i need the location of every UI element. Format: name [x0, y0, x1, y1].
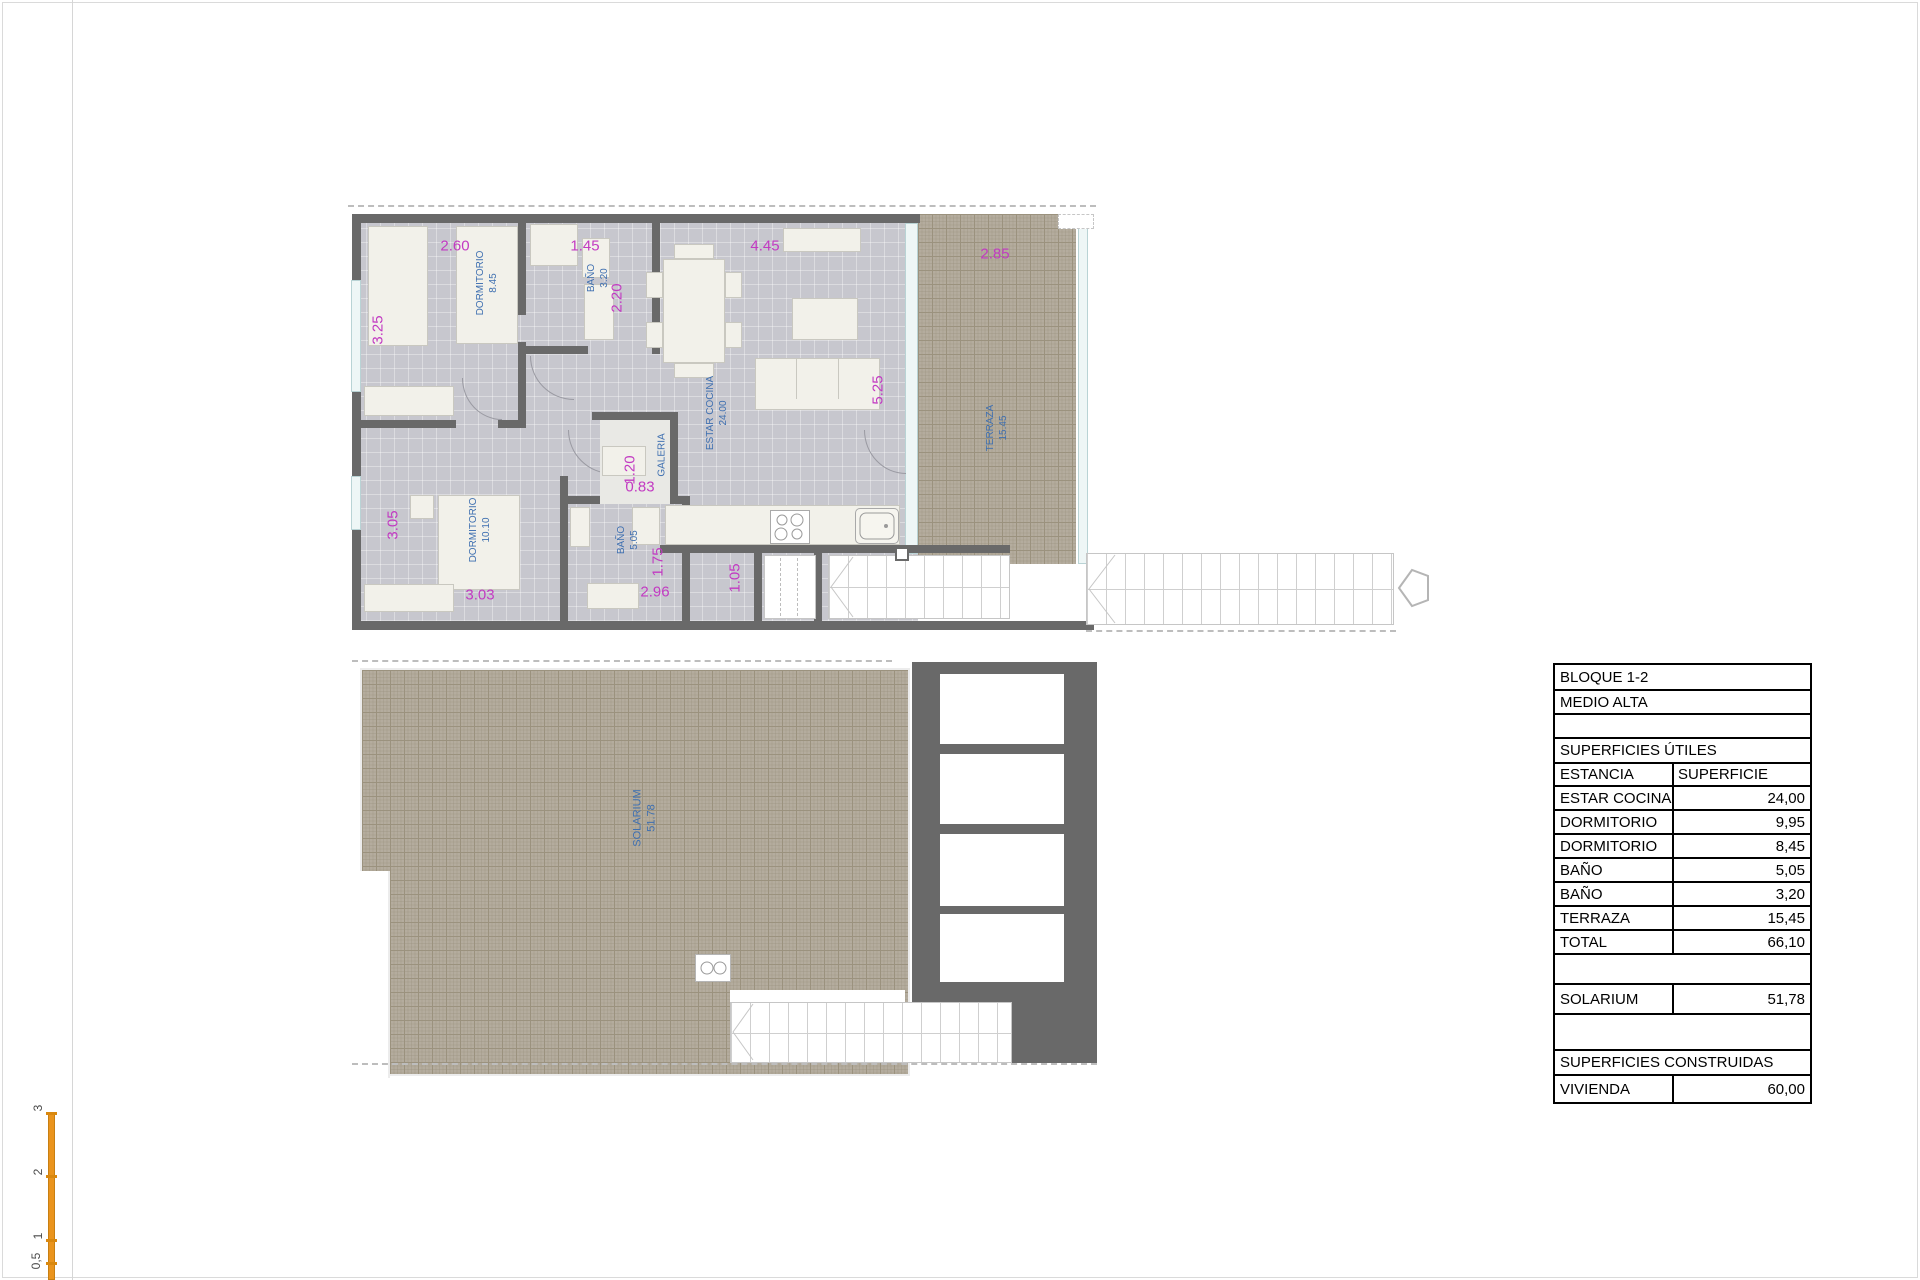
stairs-mid-line: [829, 587, 1009, 588]
room-name: GALERIA: [656, 433, 669, 476]
table-cell: BAÑO: [1555, 884, 1672, 905]
stairs-mid-line: [1087, 589, 1393, 590]
chair: [646, 272, 663, 298]
external-stairs: [1086, 553, 1394, 625]
stairs-chevron: [731, 1003, 755, 1062]
dim-label: 2.20: [609, 283, 626, 312]
stairs-chevron: [1087, 554, 1117, 624]
room-label-dormitorio-2: DORMITORIO 10.10: [467, 498, 493, 563]
room-area: 8.45: [487, 251, 500, 316]
terraza-glazing: [905, 223, 918, 554]
table-cell: 51,78: [1672, 985, 1810, 1013]
core-opening: [940, 914, 1064, 982]
up-direction-arrow: [1396, 566, 1432, 610]
table-row: BAÑO 3,20: [1555, 883, 1810, 907]
wall: [660, 545, 1010, 553]
wall: [560, 476, 568, 621]
scale-label: 3: [31, 1105, 45, 1112]
upper-floor-plan: 2.60 1.45 4.45 2.85 3.25 2.20 5.25 1.20 …: [352, 214, 1432, 634]
toilet: [570, 507, 590, 547]
solarium-stairs: [730, 1002, 1012, 1063]
table-row: MEDIO ALTA: [1555, 691, 1810, 715]
coffee-table: [792, 298, 858, 340]
closet: [764, 555, 816, 619]
room-label-bano-1: BAÑO 3.20: [585, 264, 611, 292]
room-label-terraza: TERRAZA 15.45: [984, 405, 1010, 452]
wall: [518, 342, 526, 428]
sofa-seam: [796, 359, 797, 399]
nightstand: [410, 495, 434, 519]
table-cell: SUPERFICIES ÚTILES: [1555, 740, 1810, 761]
areas-table: BLOQUE 1-2 MEDIO ALTA SUPERFICIES ÚTILES…: [1553, 663, 1812, 1104]
solarium-plan: SOLARIUM 51.78: [352, 658, 1112, 1090]
table-cell: SUPERFICIES CONSTRUIDAS: [1555, 1052, 1810, 1073]
table-cell: [1555, 1030, 1810, 1034]
dim-label: 2.60: [440, 238, 469, 255]
table-cell: 9,95: [1672, 811, 1810, 833]
table-cell: [1555, 967, 1810, 971]
room-label-dormitorio-1: DORMITORIO 8.45: [474, 251, 500, 316]
skylight-circles: [696, 955, 730, 981]
dim-label: 2.96: [640, 584, 669, 601]
table-cell: TOTAL: [1555, 932, 1672, 953]
core-opening: [940, 674, 1064, 744]
table-row: TOTAL 66,10: [1555, 931, 1810, 955]
table-cell: MEDIO ALTA: [1555, 692, 1810, 713]
table-row: DORMITORIO 9,95: [1555, 811, 1810, 835]
scale-tick: [46, 1175, 57, 1178]
dim-label: 1.45: [570, 238, 599, 255]
dim-label: 0.83: [625, 479, 654, 496]
wall: [352, 420, 456, 428]
table-cell: DORMITORIO: [1555, 812, 1672, 833]
drawing-sheet: { "table": { "rows": [ {"label": "BLOQUE…: [0, 0, 1920, 1280]
room-name: DORMITORIO: [474, 251, 487, 316]
stairs-chevron: [829, 556, 855, 618]
scale-bar: 3 2 1 0,5: [28, 1098, 68, 1280]
dresser: [364, 386, 454, 416]
room-area: 10.10: [480, 498, 493, 563]
room-name: ESTAR COCINA: [704, 376, 717, 450]
scale-label: 2: [31, 1169, 45, 1176]
room-area: 15.45: [997, 405, 1010, 452]
scale-tick: [46, 1112, 57, 1115]
window: [351, 476, 361, 530]
kitchen-sink: [855, 508, 899, 544]
table-row: ESTAR COCINA 24,00: [1555, 787, 1810, 811]
plan-dashed-line: [352, 1063, 1097, 1065]
table-row: [1555, 1015, 1810, 1051]
table-cell: BLOQUE 1-2: [1555, 667, 1810, 688]
dim-label: 4.45: [750, 238, 779, 255]
dining-table: [663, 259, 725, 363]
wall: [754, 553, 762, 621]
table-cell: ESTAR COCINA: [1555, 788, 1672, 809]
sink-basin: [856, 509, 898, 543]
table-row: TERRAZA 15,45: [1555, 907, 1810, 931]
wall: [592, 412, 678, 420]
dim-label: 3.05: [385, 510, 402, 539]
table-cell: ESTANCIA: [1555, 764, 1672, 785]
table-row: SOLARIUM 51,78: [1555, 985, 1810, 1015]
table-row: SUPERFICIES CONSTRUIDAS: [1555, 1051, 1810, 1076]
deck-notch: [358, 871, 390, 1078]
terraza-floor: [918, 214, 1076, 564]
table-cell: 3,20: [1672, 883, 1810, 905]
scale-label: 0,5: [29, 1253, 43, 1270]
room-name: TERRAZA: [984, 405, 997, 452]
chair: [674, 244, 714, 259]
closet-door-line: [780, 558, 781, 616]
dim-label: 1.05: [727, 563, 744, 592]
interior-stairs: [828, 555, 1010, 619]
wall: [498, 420, 526, 428]
chair: [725, 322, 742, 348]
room-name: BAÑO: [585, 264, 598, 292]
room-label-estar-cocina: ESTAR COCINA 24.00: [704, 376, 730, 450]
table-cell: [1555, 724, 1810, 728]
table-row: [1555, 715, 1810, 739]
window: [351, 280, 361, 392]
chair: [646, 322, 663, 348]
room-area: 51.78: [645, 789, 659, 846]
scale-label: 1: [31, 1233, 45, 1240]
room-label-solarium: SOLARIUM 51.78: [631, 789, 660, 846]
table-row: [1555, 955, 1810, 985]
room-area: 5.05: [628, 526, 641, 554]
table-row: VIVIENDA 60,00: [1555, 1076, 1810, 1102]
table-cell: SOLARIUM: [1555, 989, 1672, 1010]
stairs-landing: [730, 990, 905, 1002]
stairs-dashed-line: [1086, 630, 1396, 632]
room-label-galeria: GALERIA: [656, 433, 669, 476]
room-area: 3.20: [598, 264, 611, 292]
core-opening: [940, 754, 1064, 824]
sofa: [755, 358, 880, 410]
table-cell: 8,45: [1672, 835, 1810, 857]
chair: [725, 272, 742, 298]
stairs-mid-line: [731, 1033, 1011, 1034]
table-row: BAÑO 5,05: [1555, 859, 1810, 883]
room-area: 24.00: [717, 376, 730, 450]
wall: [518, 223, 526, 315]
table-cell: SUPERFICIE: [1672, 764, 1810, 785]
dim-label: 1.75: [650, 547, 667, 576]
roof-dashed-line: [352, 660, 892, 662]
skylight: [695, 954, 731, 982]
table-row: ESTANCIA SUPERFICIE: [1555, 764, 1810, 787]
roof-dashed-line: [348, 205, 1096, 207]
table-cell: 60,00: [1672, 1076, 1810, 1102]
wall: [352, 214, 920, 223]
terraza-corner-detail: [1058, 214, 1094, 229]
wall: [352, 214, 361, 621]
table-cell: 66,10: [1672, 931, 1810, 953]
dim-label: 3.03: [465, 587, 494, 604]
dim-label: 3.25: [370, 315, 387, 344]
table-cell: VIVIENDA: [1555, 1079, 1672, 1100]
table-cell: 5,05: [1672, 859, 1810, 881]
room-label-bano-2: BAÑO 5.05: [615, 526, 641, 554]
room-name: SOLARIUM: [631, 789, 645, 846]
wall: [526, 346, 588, 354]
wall: [670, 412, 678, 504]
sofa-seam: [838, 359, 839, 399]
table-cell: BAÑO: [1555, 860, 1672, 881]
table-cell: 15,45: [1672, 907, 1810, 929]
dim-label: 2.85: [980, 246, 1009, 263]
room-name: DORMITORIO: [467, 498, 480, 563]
room-name: BAÑO: [615, 526, 628, 554]
table-cell: 24,00: [1672, 787, 1810, 809]
table-cell: DORMITORIO: [1555, 836, 1672, 857]
wall: [352, 621, 1094, 630]
dim-label: 5.25: [870, 375, 887, 404]
column-marker: [895, 547, 909, 561]
cooktop-burners: [771, 511, 809, 543]
scale-bar-rule: [48, 1112, 55, 1280]
core-opening: [940, 834, 1064, 906]
bath-vanity: [587, 583, 639, 609]
sheet-margin-line: [72, 0, 73, 1280]
terraza-railing: [1078, 216, 1088, 564]
cooktop: [770, 510, 810, 544]
table-cell: TERRAZA: [1555, 908, 1672, 929]
wardrobe: [364, 584, 454, 612]
closet-door-line: [797, 558, 798, 616]
tv-console: [783, 228, 861, 252]
scale-tick: [46, 1239, 57, 1242]
table-row: DORMITORIO 8,45: [1555, 835, 1810, 859]
scale-tick: [46, 1262, 57, 1265]
table-row: SUPERFICIES ÚTILES: [1555, 739, 1810, 764]
table-row: BLOQUE 1-2: [1555, 665, 1810, 691]
